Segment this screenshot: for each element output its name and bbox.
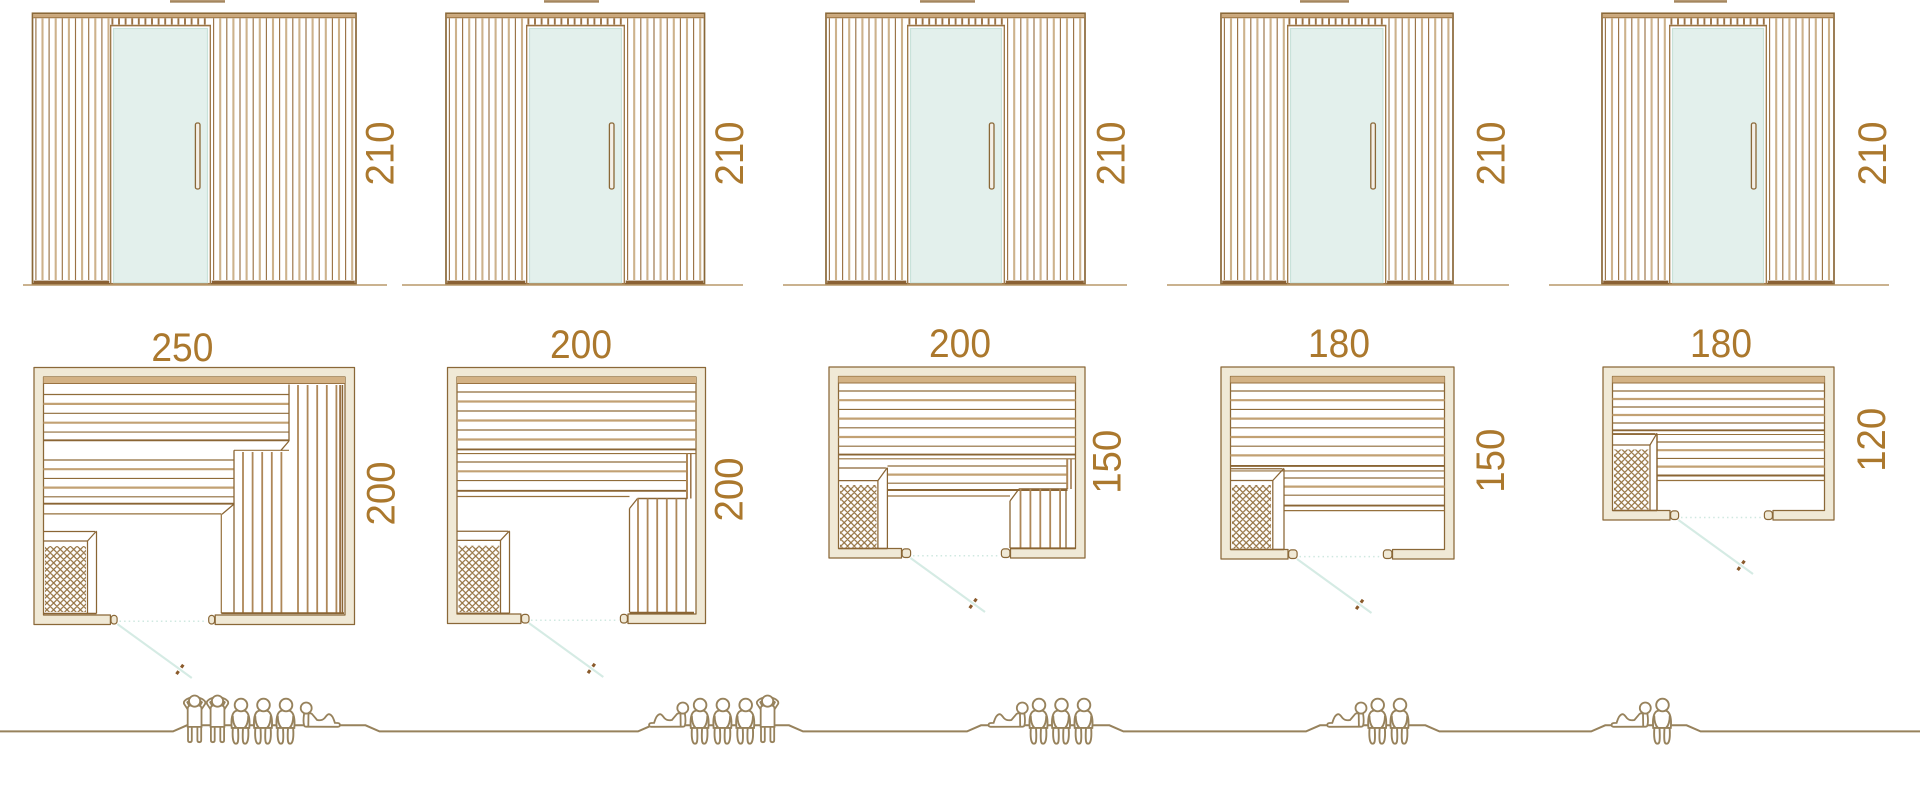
svg-text:210: 210 <box>1851 122 1895 186</box>
svg-text:250: 250 <box>151 326 213 370</box>
svg-text:210: 210 <box>358 122 402 186</box>
svg-text:210: 210 <box>708 122 752 186</box>
svg-text:180: 180 <box>1690 322 1752 366</box>
svg-text:200: 200 <box>929 322 991 366</box>
svg-text:180: 180 <box>1308 322 1370 366</box>
svg-text:200: 200 <box>359 462 403 526</box>
svg-text:150: 150 <box>1086 430 1130 494</box>
svg-text:200: 200 <box>550 323 612 367</box>
svg-text:120: 120 <box>1850 408 1894 472</box>
svg-text:200: 200 <box>707 458 751 522</box>
svg-text:210: 210 <box>1089 122 1133 186</box>
svg-text:210: 210 <box>1469 122 1513 186</box>
svg-text:150: 150 <box>1469 429 1513 493</box>
